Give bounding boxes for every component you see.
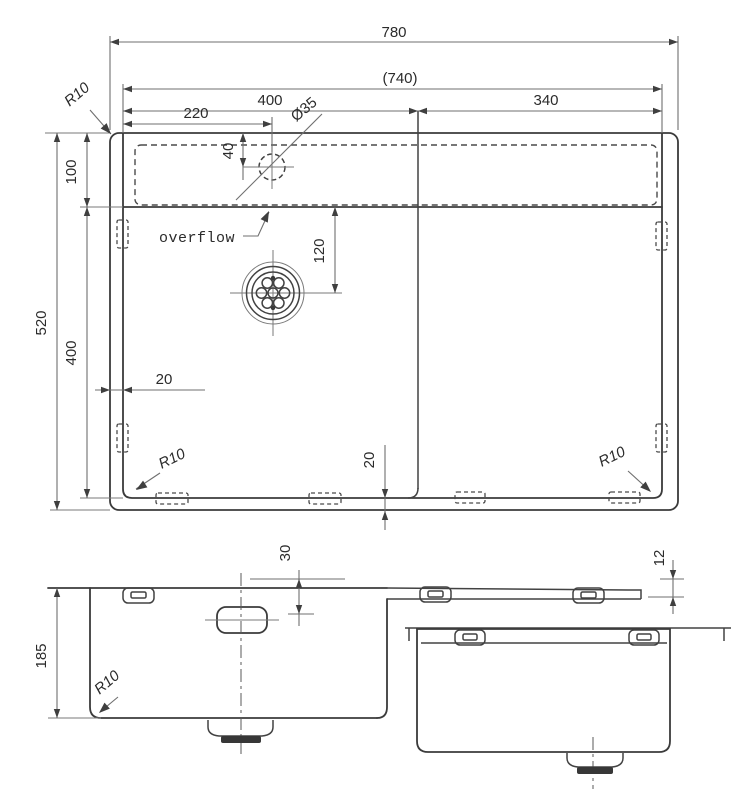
front-view: 185 30 12 R10 — [33, 545, 684, 756]
svg-text:120: 120 — [311, 238, 328, 263]
tap-deck-hidden-edge — [135, 145, 657, 205]
svg-text:(740): (740) — [382, 70, 417, 87]
svg-text:400: 400 — [257, 92, 282, 109]
sink-dimension-drawing: overflow 780 (740) 400 340 — [0, 0, 742, 800]
sink-inner-rim — [123, 133, 662, 498]
svg-text:R10: R10 — [156, 445, 189, 473]
dim-drain-offset: 120 — [311, 207, 338, 293]
svg-text:40: 40 — [220, 143, 237, 160]
dim-tap-offset-y: 40 — [220, 133, 266, 180]
svg-text:185: 185 — [33, 643, 50, 668]
svg-text:R10: R10 — [91, 667, 124, 698]
sink-outer-edge — [110, 133, 678, 510]
svg-text:100: 100 — [63, 159, 80, 184]
dim-bowl-height: 185 — [33, 588, 60, 718]
radius-callout-top-left: R10 — [61, 79, 114, 137]
svg-text:R10: R10 — [61, 79, 94, 110]
radius-callout-bottom-right: R10 — [596, 443, 654, 495]
bowl-right-wall — [377, 599, 387, 718]
svg-text:340: 340 — [533, 92, 558, 109]
dim-edge-gap-left: 20 — [95, 371, 205, 393]
tap-hole — [236, 114, 322, 200]
radius-callout-bowl: R10 — [134, 445, 189, 493]
svg-text:20: 20 — [361, 452, 378, 469]
tap-hole-leader — [236, 114, 322, 200]
side-view — [405, 628, 731, 789]
dim-overflow-offset: 30 — [250, 545, 345, 626]
svg-text:R10: R10 — [596, 443, 629, 471]
overflow-label: overflow — [159, 230, 235, 247]
bowl-corner-arc — [408, 488, 418, 498]
svg-text:400: 400 — [63, 340, 80, 365]
svg-text:12: 12 — [651, 550, 668, 567]
dim-bowl-depth: 400 — [63, 207, 90, 498]
plan-view: overflow 780 (740) 400 340 — [33, 24, 678, 530]
dim-edge-gap-bottom: 20 — [361, 445, 388, 530]
side-drain — [567, 753, 623, 774]
svg-text:780: 780 — [381, 24, 406, 41]
radius-callout-front: R10 — [91, 667, 124, 716]
mounting-clips — [117, 220, 667, 504]
dim-rim-thickness: 12 — [648, 550, 684, 614]
svg-text:30: 30 — [277, 545, 294, 562]
svg-text:220: 220 — [183, 105, 208, 122]
dim-overall-depth: 520 — [33, 133, 60, 510]
dim-deck-depth: 100 — [63, 133, 90, 207]
technical-drawing-sheet: overflow 780 (740) 400 340 — [0, 0, 742, 800]
svg-text:520: 520 — [33, 310, 50, 335]
side-bowl-body — [417, 629, 670, 752]
svg-text:20: 20 — [156, 371, 173, 388]
overflow-slot — [205, 607, 279, 633]
overflow-callout: overflow — [159, 209, 273, 247]
